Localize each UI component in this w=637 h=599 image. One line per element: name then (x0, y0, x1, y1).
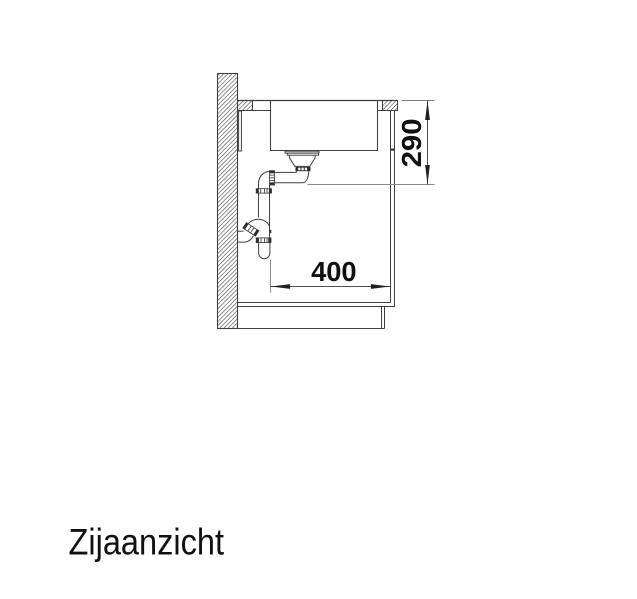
svg-text:400: 400 (311, 256, 357, 287)
svg-text:Zijaanzicht: Zijaanzicht (69, 522, 225, 563)
svg-text:290: 290 (396, 118, 427, 167)
